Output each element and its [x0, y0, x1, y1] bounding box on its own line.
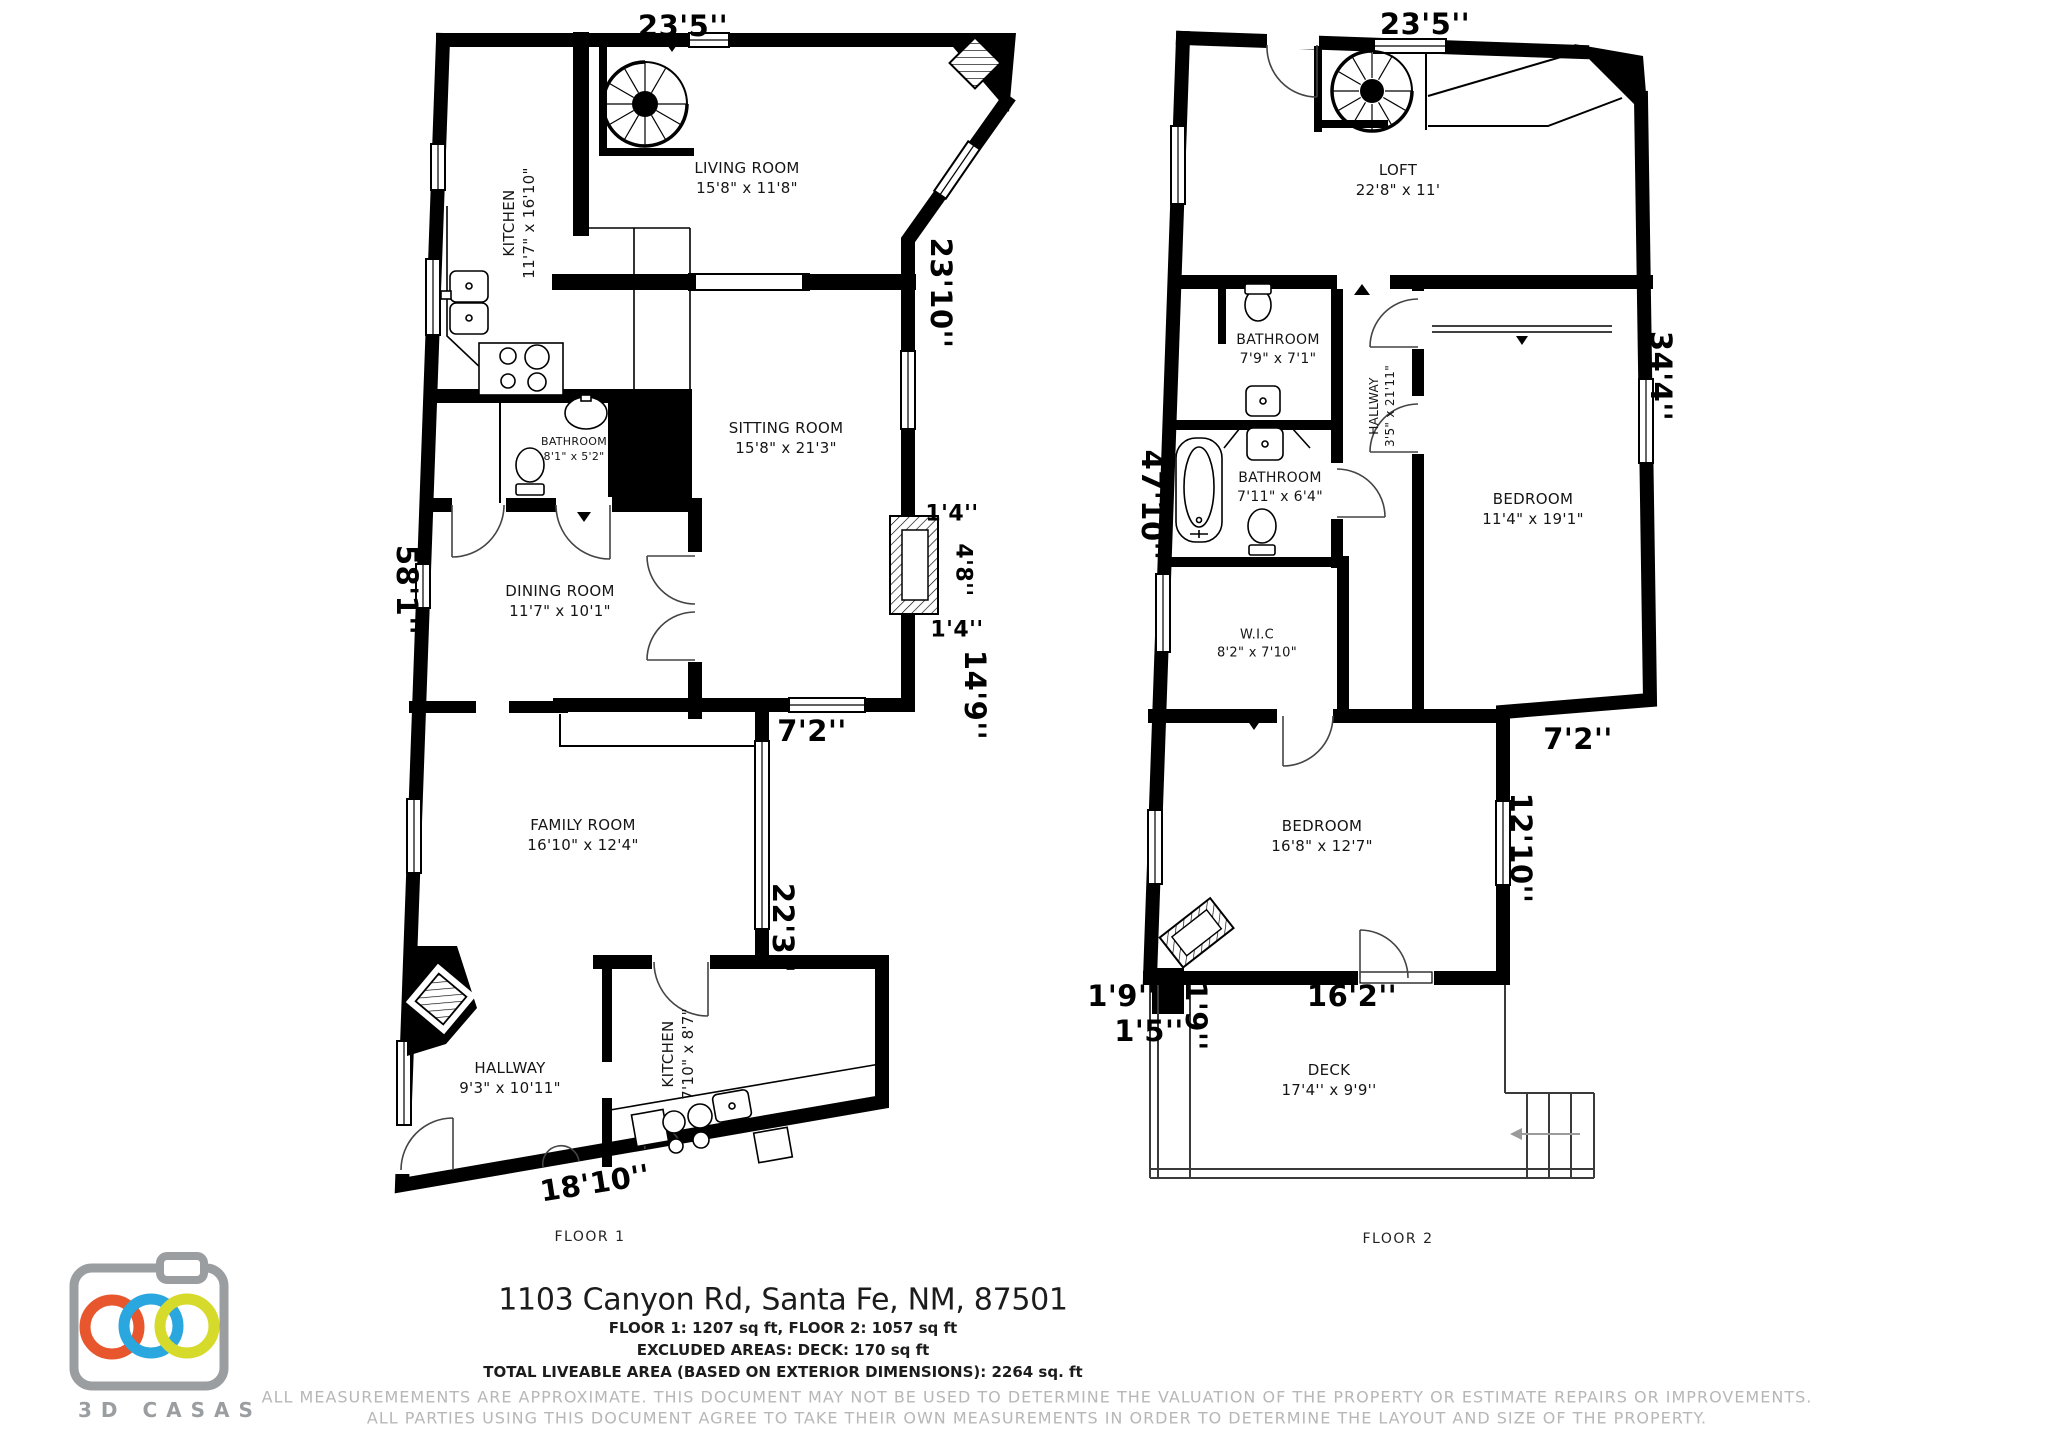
logo-ring-yellow [160, 1299, 214, 1353]
room-label-wic: W.I.C 8'2" x 7'10" [1217, 626, 1297, 661]
floorplans-canvas [0, 0, 2048, 1449]
room-label-bathroom-lower: BATHROOM 7'11" x 6'4" [1237, 469, 1323, 507]
logo-brand-text: 3D CASAS [78, 1398, 262, 1422]
closet-doors [1432, 326, 1612, 345]
room-label-hallway-f2: HALLWAY 3'5" x 21'11" [1366, 365, 1398, 447]
room-label-living: LIVING ROOM 15'8" x 11'8" [694, 158, 799, 199]
floor2-caption: FLOOR 2 [1363, 1231, 1434, 1247]
room-label-hallway-f1: HALLWAY 9'3" x 10'11" [459, 1058, 561, 1099]
floor2-plan [1148, 33, 1653, 1178]
room-label-deck: DECK 17'4'' x 9'9'' [1281, 1060, 1376, 1101]
dim-f1-sitting-bottom: 7'2'' [777, 714, 847, 748]
room-label-dining: DINING ROOM 11'7" x 10'1" [505, 581, 615, 622]
toilet-icon-b2 [1248, 509, 1276, 555]
dim-f1-top: 23'5'' [638, 9, 728, 43]
dim-f2-right-upper: 34'4'' [1644, 331, 1678, 421]
sink-icon-b1 [1246, 386, 1280, 416]
deck-stairs-icon [1510, 1093, 1580, 1178]
floor1-plan [392, 33, 1016, 1185]
disclaimer-line2: ALL PARTIES USING THIS DOCUMENT AGREE TO… [367, 1409, 1707, 1428]
dim-f1-fireplace-top: 1'4'' [925, 502, 978, 527]
dim-f1-right-mid: 14'9'' [958, 650, 992, 740]
bathtub-icon [1176, 438, 1222, 542]
dim-f2-top: 23'5'' [1380, 7, 1470, 41]
toilet-icon-b1 [1245, 284, 1271, 321]
dim-f2-bottom: 16'2'' [1307, 979, 1397, 1013]
room-label-kitchen2-f1: KITCHEN 7'10" x 8'7" [658, 1008, 699, 1100]
dim-f1-left: 58'1'' [390, 545, 424, 635]
disclaimer-line1: ALL MEASUREMEMENTS ARE APPROXIMATE. THIS… [262, 1388, 1813, 1407]
dim-f1-fireplace-side: 4'8'' [951, 543, 976, 596]
3d-casas-logo [60, 1252, 290, 1402]
dim-f2-right-lower: 12'10'' [1504, 793, 1538, 904]
sink-icon-b2 [1224, 428, 1310, 460]
room-label-loft: LOFT 22'8" x 11' [1356, 160, 1441, 201]
room-label-bedroom-right: BEDROOM 11'4" x 19'1" [1482, 489, 1584, 530]
kitchen-sink-icon [441, 271, 488, 334]
property-address: 1103 Canyon Rd, Santa Fe, NM, 87501 [498, 1283, 1067, 1318]
room-label-bathroom-f1: BATHROOM 8'1" x 5'2" [541, 435, 607, 465]
stove-icon [479, 343, 563, 395]
area-stats-line2: EXCLUDED AREAS: DECK: 170 sq ft [637, 1341, 930, 1359]
room-label-kitchen-f1: KITCHEN 11'7" x 16'10" [499, 167, 540, 278]
area-stats-line3: TOTAL LIVEABLE AREA (BASED ON EXTERIOR D… [483, 1363, 1082, 1381]
fireplace-icon [890, 516, 938, 614]
dim-f2-offset-inner: 1'9'' [1179, 981, 1213, 1051]
spiral-staircase-icon [603, 46, 690, 152]
spiral-staircase-icon-f2 [1318, 50, 1622, 132]
dim-f1-right-lower: 22'3'' [766, 883, 800, 973]
dim-f2-offset-bottom: 1'5'' [1114, 1014, 1184, 1048]
room-label-bedroom-lower: BEDROOM 16'8" x 12'7" [1271, 816, 1373, 857]
floorplan-page: KITCHEN 11'7" x 16'10" LIVING ROOM 15'8"… [0, 0, 2048, 1449]
room-label-bathroom-upper: BATHROOM 7'9" x 7'1" [1236, 331, 1319, 369]
camera-body-icon [74, 1268, 224, 1386]
dim-f1-fireplace-bottom: 1'4'' [930, 618, 983, 643]
dim-f2-left: 47'10'' [1135, 450, 1169, 561]
floor1-caption: FLOOR 1 [555, 1229, 626, 1245]
room-label-family: FAMILY ROOM 16'10" x 12'4" [527, 815, 638, 856]
hallway-fireplace-icon [406, 946, 477, 1056]
room-label-sitting: SITTING ROOM 15'8" x 21'3" [729, 418, 844, 459]
dim-f2-offset-left: 1'9'' [1087, 979, 1157, 1013]
camera-viewfinder-icon [160, 1256, 204, 1280]
dim-f2-step: 7'2'' [1543, 722, 1613, 756]
area-stats-line1: FLOOR 1: 1207 sq ft, FLOOR 2: 1057 sq ft [609, 1319, 957, 1337]
dim-f1-right-upper: 23'10'' [924, 238, 958, 349]
bedroom-fireplace-icon [1160, 898, 1234, 967]
